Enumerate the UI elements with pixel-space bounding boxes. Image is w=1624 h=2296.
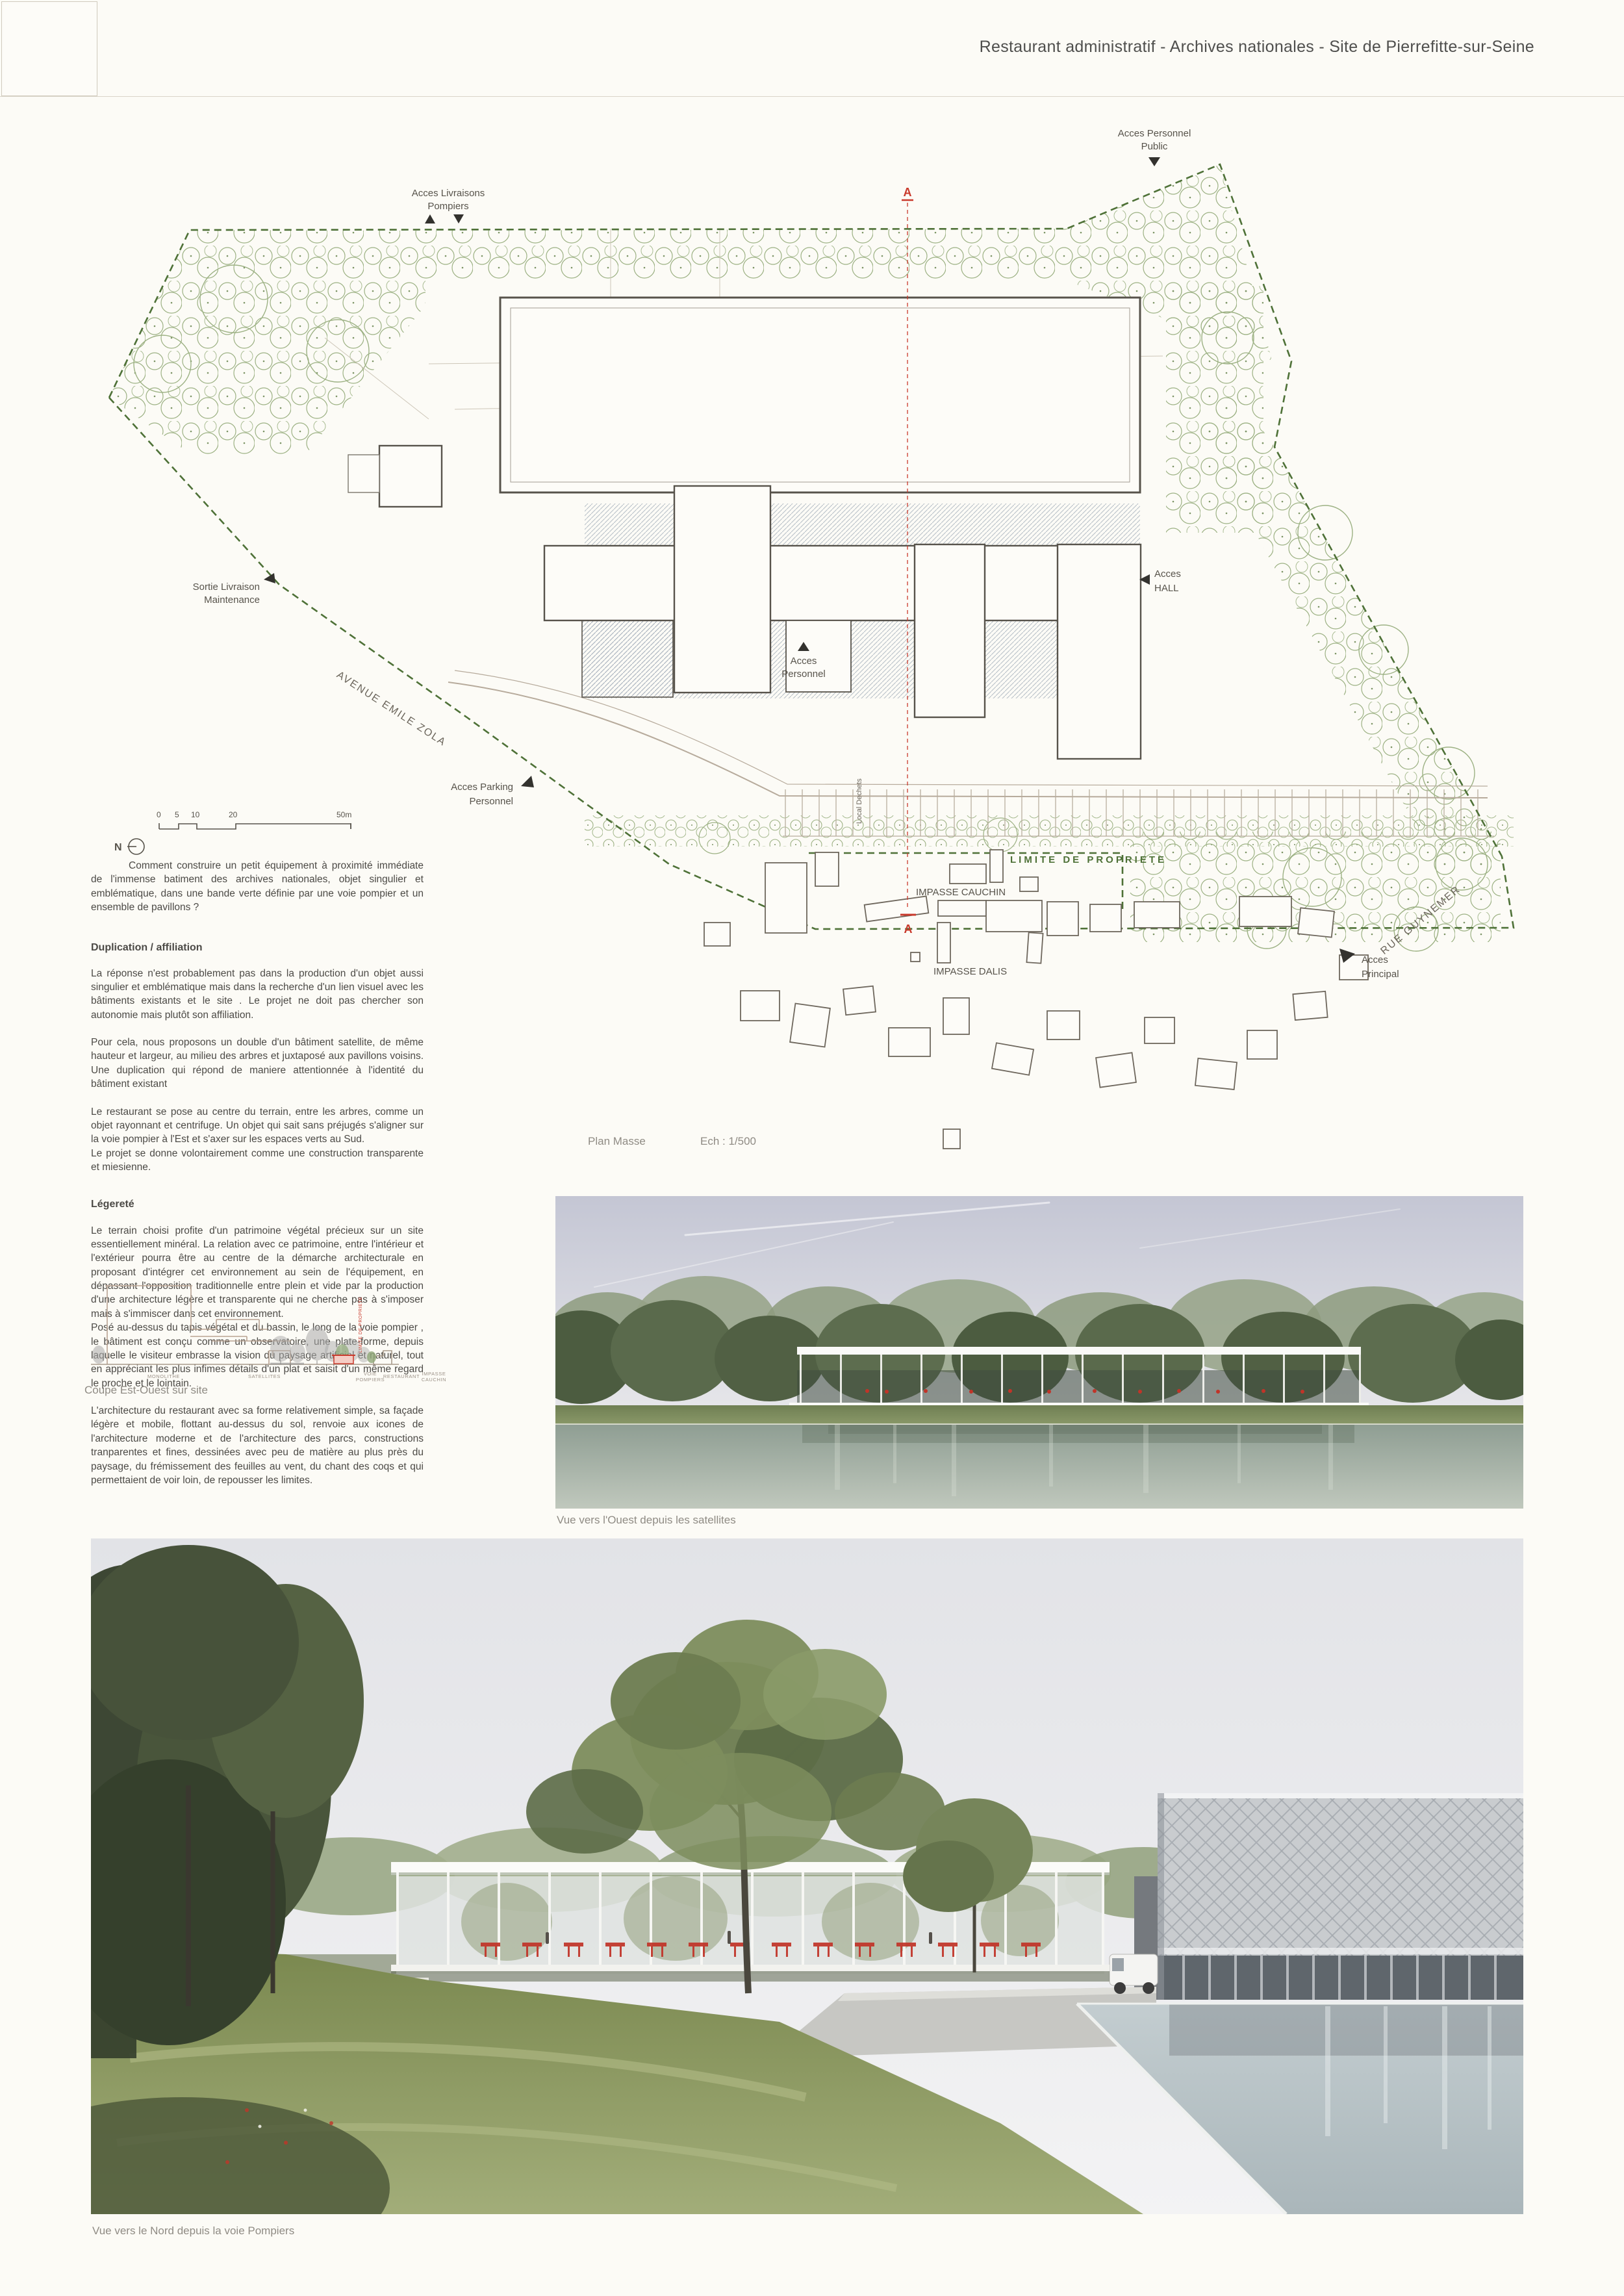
label-avenue-emile-zola: AVENUE EMILE ZOLA — [335, 669, 448, 748]
svg-text:10: 10 — [191, 810, 200, 819]
svg-text:20: 20 — [229, 810, 238, 819]
coupe-caption: Coupe Est-Ouest sur site — [84, 1384, 208, 1397]
svg-text:Personnel: Personnel — [469, 796, 513, 807]
label-impasse-dalis: IMPASSE DALIS — [933, 966, 1007, 977]
label-limite-de-propriete: LIMITE DE PROPRIETE — [1010, 854, 1167, 865]
svg-text:Personnel: Personnel — [781, 669, 826, 680]
label-sortie-livraison: Sortie Livraison — [193, 581, 260, 593]
coupe-restaurant — [334, 1355, 353, 1364]
label-local-dechets: Local Dechets — [856, 778, 863, 824]
arrow-down-icon — [1148, 157, 1160, 166]
essay-heading-duplication: Duplication / affiliation — [91, 941, 424, 955]
svg-text:SATELLITES: SATELLITES — [248, 1373, 281, 1379]
svg-text:Public: Public — [1141, 141, 1168, 152]
coupe-limite-label: LIMITE DE PROPRIETE — [359, 1297, 363, 1353]
scale-bar: 0 5 10 20 50m — [157, 810, 351, 829]
essay-intro: Comment construire un petit équipement à… — [91, 859, 424, 915]
svg-text:N: N — [114, 842, 122, 853]
water-basin — [555, 1425, 1523, 1509]
render-west-view — [555, 1196, 1523, 1509]
svg-text:Pompiers: Pompiers — [427, 201, 468, 212]
label-acces-principal: Acces — [1362, 954, 1388, 965]
essay-paragraph: L'architecture du restaurant avec sa for… — [91, 1404, 424, 1487]
arrow-up-icon — [425, 214, 435, 223]
render-north-view — [91, 1538, 1523, 2214]
render-west-caption: Vue vers l'Ouest depuis les satellites — [557, 1514, 736, 1527]
svg-text:CAUCHIN: CAUCHIN — [422, 1377, 446, 1383]
section-marker-bottom: A — [904, 923, 913, 936]
arrow-down-icon — [453, 214, 464, 223]
svg-text:HALL: HALL — [1154, 583, 1179, 594]
svg-text:Principal: Principal — [1362, 969, 1399, 980]
svg-text:5: 5 — [175, 810, 179, 819]
svg-text:IMPASSE: IMPASSE — [422, 1371, 446, 1377]
svg-text:RESTAURANT: RESTAURANT — [383, 1373, 420, 1379]
arrow-left-icon — [521, 776, 534, 787]
label-acces-parking: Acces Parking — [451, 782, 513, 793]
label-acces-hall: Acces — [1154, 568, 1181, 580]
svg-text:VOIE: VOIE — [364, 1371, 377, 1377]
essay-heading-legerete: Légereté — [91, 1197, 424, 1212]
svg-text:MONOLITHE: MONOLITHE — [147, 1373, 180, 1379]
label-acces-livraisons: Acces Livraisons — [412, 188, 485, 199]
coupe-labels: MONOLITHE SATELLITES VOIE POMPIERS RESTA… — [147, 1371, 446, 1383]
svg-text:0: 0 — [157, 810, 161, 819]
svg-text:POMPIERS: POMPIERS — [356, 1377, 385, 1383]
plan-caption-name: Plan Masse — [588, 1135, 646, 1147]
essay-paragraph: Pour cela, nous proposons un double d'un… — [91, 1036, 424, 1091]
label-acces-personnel: Acces — [791, 656, 817, 667]
essay-paragraph: La réponse n'est probablement pas dans l… — [91, 967, 424, 1023]
render-north-caption: Vue vers le Nord depuis la voie Pompiers — [92, 2225, 294, 2238]
svg-text:50m: 50m — [336, 810, 351, 819]
section-marker-top: A — [904, 186, 912, 199]
plan-caption-scale: Ech : 1/500 — [700, 1135, 756, 1147]
label-acces-personnel-public: Acces Personnel — [1118, 128, 1191, 139]
label-impasse-cauchin: IMPASSE CAUCHIN — [916, 887, 1006, 898]
svg-text:Maintenance: Maintenance — [204, 594, 260, 606]
plan-caption: Plan Masse Ech : 1/500 — [588, 1135, 756, 1147]
essay-paragraph: Le restaurant se pose au centre du terra… — [91, 1105, 424, 1175]
north-arrow: N — [114, 839, 144, 854]
plan-buildings — [348, 298, 1141, 759]
archives-building — [1134, 1793, 1523, 2000]
presentation-board: { "header": { "title": "Restaurant admin… — [0, 0, 1624, 2296]
